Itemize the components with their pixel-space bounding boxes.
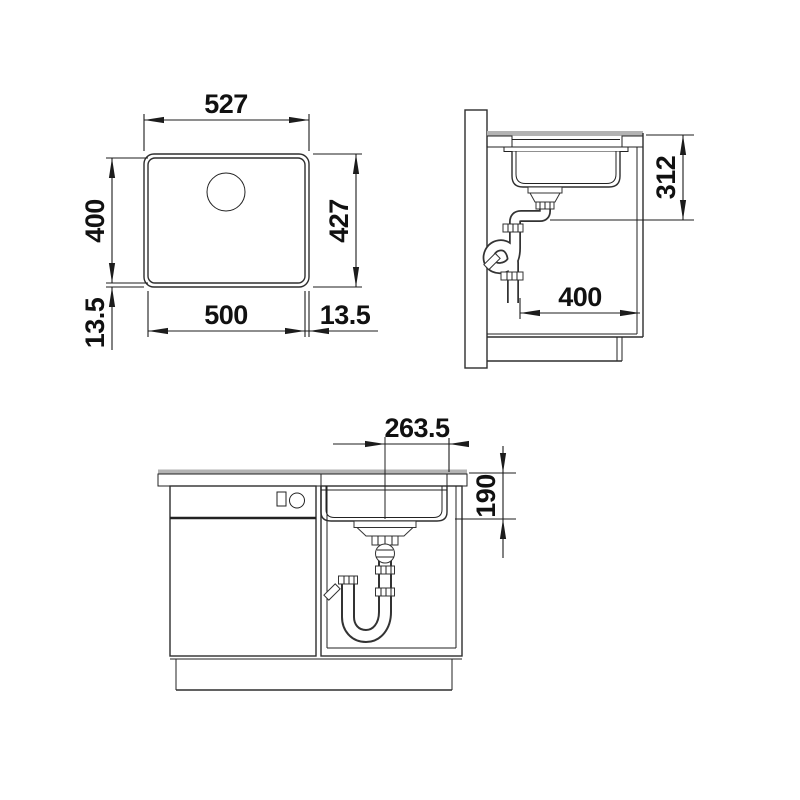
front-view: 263.5 190	[158, 413, 516, 690]
strainer-body-side	[530, 193, 560, 202]
dim-outer-depth: 427	[313, 154, 362, 287]
trap-arm-cap	[339, 576, 358, 584]
dim-drain-offset: 263.5	[333, 413, 469, 472]
strainer-flange-front	[354, 521, 416, 528]
side-view: 312 400	[465, 110, 694, 368]
dim-rim-right: 13.5	[305, 291, 378, 337]
dim-outlet-height-label: 312	[651, 156, 681, 200]
dim-bowl-depth-front-label: 190	[471, 474, 501, 518]
dim-drain-offset-label: 263.5	[384, 413, 450, 443]
drain-trap-front	[324, 521, 416, 636]
technical-drawing: 527 400 13.5 427	[0, 0, 800, 800]
dim-rim-right-label: 13.5	[320, 300, 371, 330]
worktop-front	[158, 472, 467, 487]
dim-bowl-width-label: 500	[204, 300, 248, 330]
strainer-flange-side	[528, 187, 562, 193]
control-dial	[290, 493, 305, 508]
drain-trap-side	[484, 187, 562, 303]
dim-outer-width-label: 527	[204, 89, 248, 119]
dim-rim-left-label: 13.5	[80, 297, 110, 348]
dim-bowl-depth: 400	[80, 158, 148, 283]
plinth	[170, 659, 462, 690]
dim-outlet-distance-label: 400	[558, 282, 602, 312]
drain-hole-circle	[207, 173, 245, 211]
dim-outer-depth-label: 427	[324, 199, 354, 243]
coupling-side	[536, 202, 554, 209]
dim-outer-width: 527	[144, 89, 309, 151]
pipe-collar-front-lower	[376, 588, 395, 596]
worktop-section	[487, 134, 643, 148]
strainer-body-front	[357, 528, 413, 537]
trap-bolt-front	[324, 584, 340, 600]
dim-bowl-width: 500	[148, 291, 305, 337]
pipe-collar-front-upper	[376, 566, 395, 574]
dim-bowl-depth-label: 400	[80, 199, 110, 243]
wall-section	[465, 110, 487, 368]
dishwasher-cabinet	[170, 486, 316, 656]
basin-section	[504, 140, 628, 188]
plan-view: 527 400 13.5 427	[80, 89, 378, 350]
control-button	[277, 492, 286, 506]
ball-joint	[376, 544, 395, 563]
dim-outlet-distance: 400	[520, 282, 640, 319]
dim-bowl-depth-front: 190	[455, 446, 516, 558]
pipe-collar-lower	[501, 272, 523, 280]
dim-rim-left: 13.5	[80, 287, 144, 350]
pipe-collar-upper	[503, 224, 523, 232]
